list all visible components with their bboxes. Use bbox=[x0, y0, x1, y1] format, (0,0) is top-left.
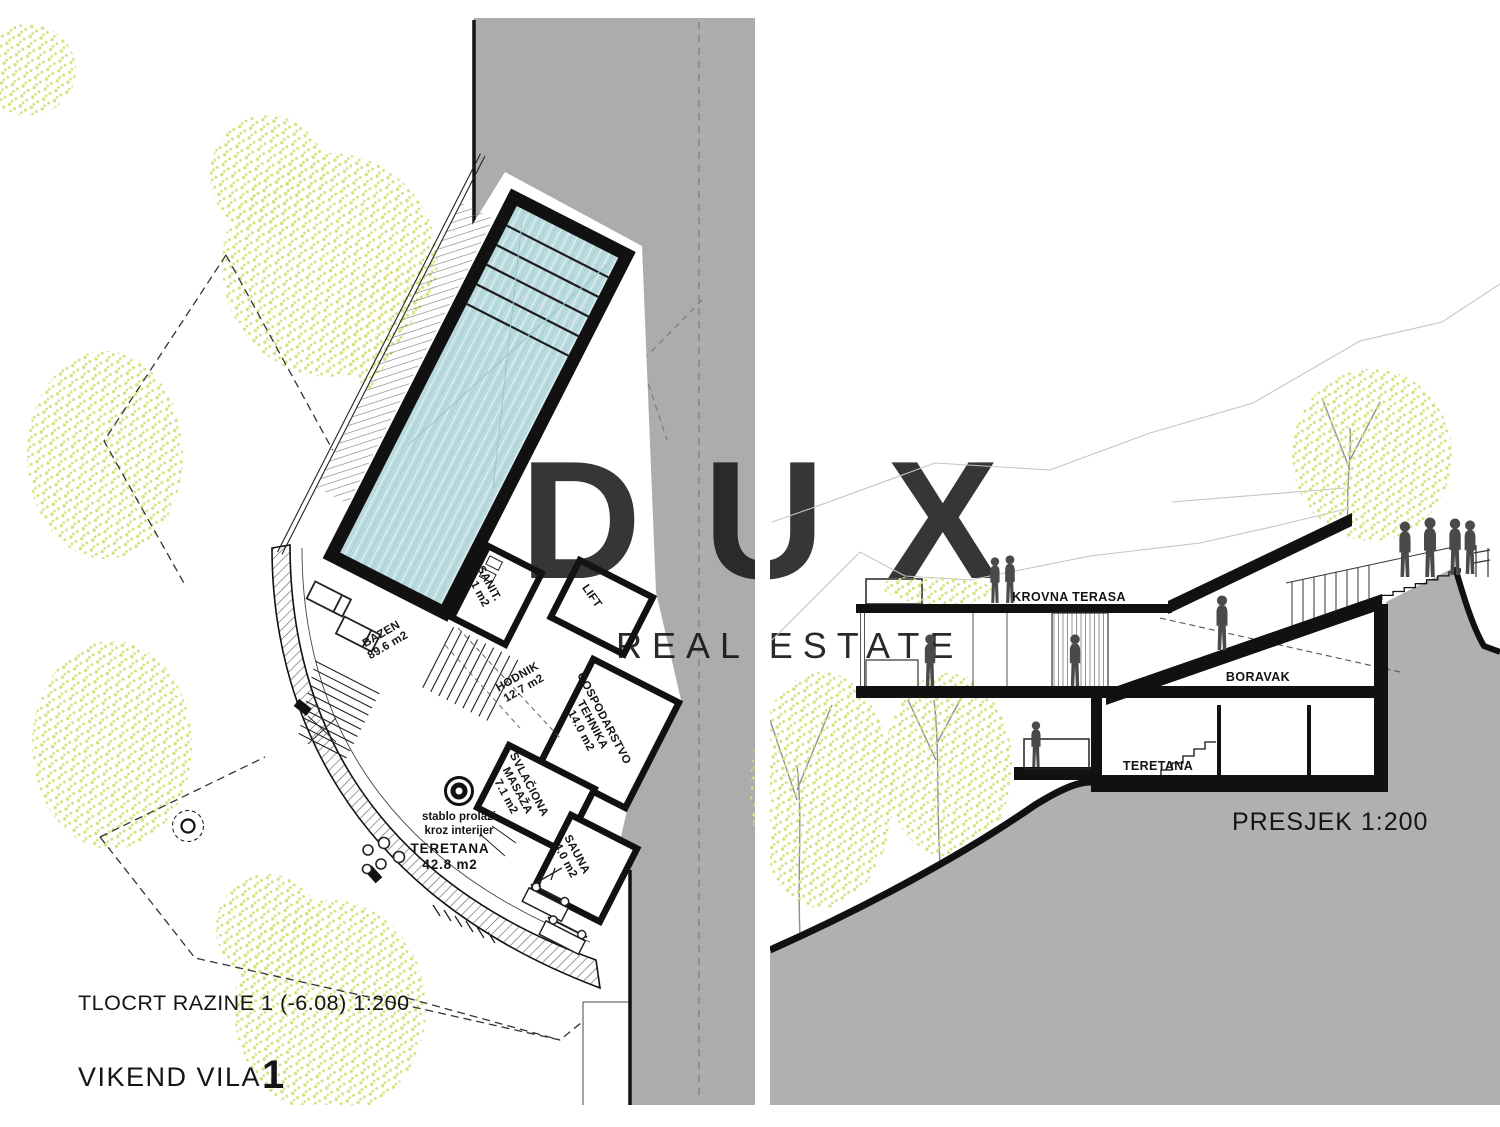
tree-note-line2: kroz interijer bbox=[424, 825, 494, 837]
tree-note-line1: stablo prolazi bbox=[422, 811, 496, 823]
label-teretana-section: TERETANA bbox=[1123, 759, 1193, 773]
plan-title: TLOCRT RAZINE 1 (-6.08) 1:200 bbox=[78, 991, 410, 1015]
architectural-sheet: BAZEN 89.6 m2 SANIT. 3.1 m2 LIFT HODNIK … bbox=[0, 0, 1500, 1127]
margin-bottom bbox=[0, 1105, 1500, 1127]
project-number: 1 bbox=[262, 1053, 284, 1097]
project-name: VIKEND VILA bbox=[78, 1062, 261, 1092]
lower-volume bbox=[1014, 698, 1388, 792]
teretana-name: TERETANA bbox=[411, 841, 490, 856]
outdoor-tree-marker bbox=[173, 811, 204, 842]
section-drawing: KROVNA TERASA BORAVAK TERETANA PRESJEK 1… bbox=[750, 284, 1500, 1105]
terrace-slab bbox=[856, 604, 1172, 613]
bottom-slab bbox=[1091, 775, 1388, 792]
drawing-canvas: BAZEN 89.6 m2 SANIT. 3.1 m2 LIFT HODNIK … bbox=[0, 0, 1500, 1127]
teretana-area: 42.8 m2 bbox=[422, 857, 477, 872]
panel-gap bbox=[755, 0, 770, 1127]
label-krovna-terasa: KROVNA TERASA bbox=[1012, 590, 1126, 604]
right-wall bbox=[1374, 604, 1388, 790]
margin-top bbox=[0, 0, 1500, 18]
label-boravak: BORAVAK bbox=[1226, 670, 1290, 684]
crest-rail bbox=[1474, 545, 1490, 577]
roof-slab bbox=[1168, 513, 1352, 614]
section-title: PRESJEK 1:200 bbox=[1232, 808, 1428, 836]
